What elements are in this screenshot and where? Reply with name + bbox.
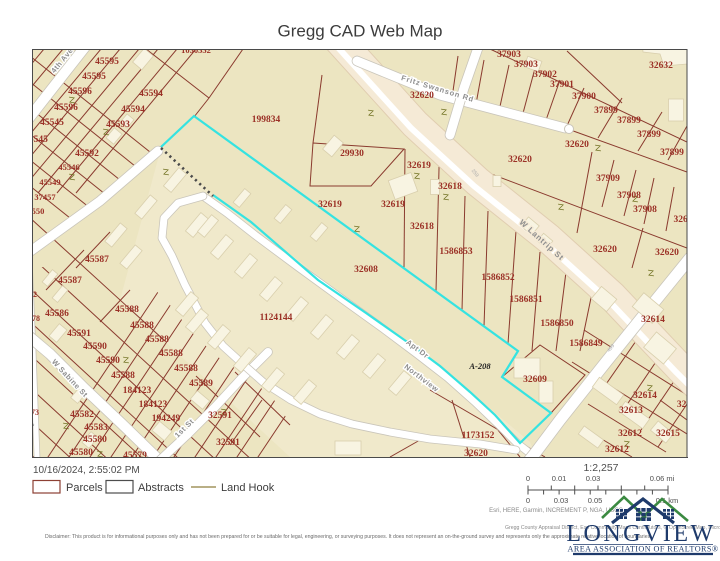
svg-text:1124144: 1124144 <box>260 313 293 323</box>
svg-text:32615: 32615 <box>656 429 680 439</box>
svg-text:37909: 37909 <box>596 174 620 184</box>
svg-text:32608: 32608 <box>354 265 378 275</box>
svg-text:32618: 32618 <box>410 222 434 232</box>
svg-text:45595: 45595 <box>95 57 119 67</box>
svg-text:45545: 45545 <box>40 118 64 128</box>
svg-text:37902: 37902 <box>533 70 557 80</box>
svg-text:45582: 45582 <box>70 410 94 420</box>
svg-text:32620: 32620 <box>593 245 617 255</box>
svg-text:184123: 184123 <box>123 386 152 396</box>
svg-text:0.05: 0.05 <box>588 496 603 505</box>
svg-text:45590: 45590 <box>96 356 120 366</box>
svg-text:37899: 37899 <box>617 116 641 126</box>
svg-text:0.03: 0.03 <box>586 474 601 483</box>
svg-text:45594: 45594 <box>121 105 145 115</box>
svg-text:45546: 45546 <box>58 162 79 172</box>
svg-text:0: 0 <box>526 474 530 483</box>
svg-text:32618: 32618 <box>438 182 462 192</box>
svg-text:Disclaimer: This product is fo: Disclaimer: This product is for informat… <box>45 534 652 540</box>
svg-text:184123: 184123 <box>139 400 168 410</box>
svg-text:45587: 45587 <box>85 255 109 265</box>
svg-text:37901: 37901 <box>550 80 574 90</box>
svg-text:37899: 37899 <box>637 130 661 140</box>
svg-text:45549: 45549 <box>39 177 60 187</box>
svg-text:37908: 37908 <box>617 191 641 201</box>
svg-text:0.03: 0.03 <box>554 496 569 505</box>
svg-text:32620: 32620 <box>655 248 679 258</box>
svg-text:1586849: 1586849 <box>569 339 603 349</box>
svg-text:45588: 45588 <box>145 335 169 345</box>
svg-text:45580: 45580 <box>69 448 93 458</box>
svg-text:10/16/2024, 2:55:02 PM: 10/16/2024, 2:55:02 PM <box>33 465 140 476</box>
svg-text:32612: 32612 <box>618 429 642 439</box>
svg-text:0: 0 <box>526 496 530 505</box>
svg-text:1586851: 1586851 <box>509 295 543 305</box>
svg-text:32620: 32620 <box>565 140 589 150</box>
svg-text:37457: 37457 <box>34 192 56 202</box>
svg-text:45588: 45588 <box>130 321 154 331</box>
svg-text:37903: 37903 <box>497 50 521 60</box>
svg-text:45596: 45596 <box>68 87 92 97</box>
svg-text:1586850: 1586850 <box>540 319 574 329</box>
svg-text:32619: 32619 <box>407 161 431 171</box>
svg-text:45588: 45588 <box>115 305 139 315</box>
svg-text:45588: 45588 <box>111 371 135 381</box>
svg-text:32609: 32609 <box>523 375 547 385</box>
svg-text:45592: 45592 <box>75 149 99 159</box>
svg-text:45594: 45594 <box>139 89 163 99</box>
svg-text:45591: 45591 <box>67 329 91 339</box>
svg-text:32620: 32620 <box>508 155 532 165</box>
svg-text:LONGVIEW: LONGVIEW <box>566 521 715 547</box>
svg-text:32612: 32612 <box>605 445 629 455</box>
svg-text:45588: 45588 <box>174 364 198 374</box>
svg-text:0.01: 0.01 <box>552 474 567 483</box>
svg-text:45595: 45595 <box>82 72 106 82</box>
svg-text:Parcels: Parcels <box>66 482 103 494</box>
svg-text:32614: 32614 <box>633 391 657 401</box>
svg-text:45593: 45593 <box>106 120 130 130</box>
svg-text:32620: 32620 <box>410 91 434 101</box>
svg-text:32591: 32591 <box>216 438 240 448</box>
svg-text:Land Hook: Land Hook <box>221 482 275 494</box>
svg-text:1:2,257: 1:2,257 <box>583 462 618 474</box>
svg-text:32614: 32614 <box>641 315 665 325</box>
svg-text:29930: 29930 <box>340 149 364 159</box>
svg-text:Gregg CAD Web Map: Gregg CAD Web Map <box>277 22 442 41</box>
svg-text:32619: 32619 <box>381 200 405 210</box>
svg-text:Abstracts: Abstracts <box>138 482 184 494</box>
svg-text:37908: 37908 <box>633 205 657 215</box>
svg-text:37903: 37903 <box>514 60 538 70</box>
svg-text:1173152: 1173152 <box>462 431 495 441</box>
svg-text:37900: 37900 <box>572 92 596 102</box>
svg-text:45588: 45588 <box>159 349 183 359</box>
svg-text:32591: 32591 <box>208 411 232 421</box>
svg-text:A-208: A-208 <box>468 361 491 371</box>
svg-text:Esri, HERE, Garmin, INCREMENT: Esri, HERE, Garmin, INCREMENT P, NGA, US… <box>489 508 623 514</box>
svg-text:550: 550 <box>32 206 45 216</box>
svg-text:37899: 37899 <box>594 106 618 116</box>
svg-text:32632: 32632 <box>649 61 673 71</box>
svg-text:32619: 32619 <box>318 200 342 210</box>
svg-text:45583: 45583 <box>84 423 108 433</box>
svg-text:1586852: 1586852 <box>481 273 515 283</box>
svg-text:1586853: 1586853 <box>439 247 473 257</box>
svg-text:0.06 mi: 0.06 mi <box>650 474 675 483</box>
svg-text:45587: 45587 <box>58 276 82 286</box>
svg-text:45589: 45589 <box>189 379 213 389</box>
svg-text:45586: 45586 <box>45 309 69 319</box>
svg-text:199834: 199834 <box>252 115 281 125</box>
svg-text:45596: 45596 <box>54 103 78 113</box>
svg-text:194249: 194249 <box>152 414 181 424</box>
svg-text:45580: 45580 <box>83 435 107 445</box>
svg-text:32613: 32613 <box>619 406 643 416</box>
svg-text:45590: 45590 <box>83 342 107 352</box>
svg-text:37899: 37899 <box>660 148 684 158</box>
svg-text:AREA ASSOCIATION OF REALTORS®: AREA ASSOCIATION OF REALTORS® <box>568 545 719 554</box>
